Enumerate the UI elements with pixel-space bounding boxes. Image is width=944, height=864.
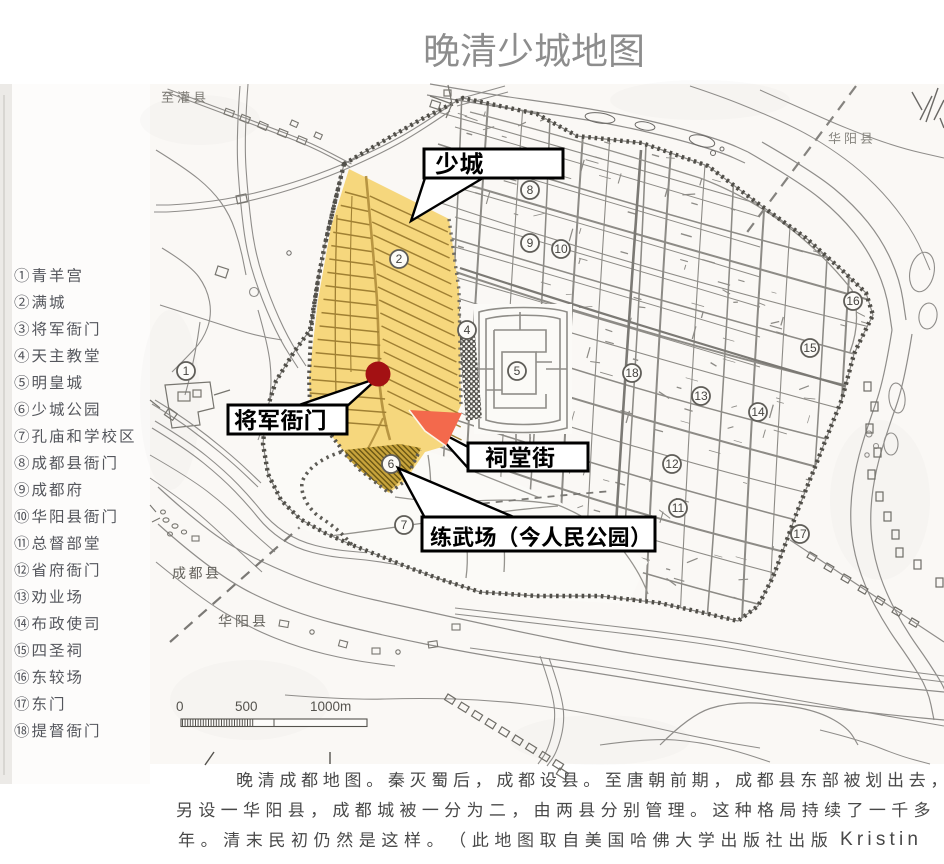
svg-text:0: 0: [176, 699, 184, 714]
svg-text:10: 10: [554, 242, 568, 256]
svg-text:18: 18: [625, 366, 639, 380]
svg-text:1: 1: [183, 364, 190, 378]
svg-text:11: 11: [672, 501, 685, 515]
svg-text:9: 9: [527, 236, 534, 250]
svg-text:14: 14: [751, 405, 765, 419]
svg-text:8: 8: [527, 183, 534, 197]
svg-text:12: 12: [665, 457, 679, 471]
svg-text:1000m: 1000m: [310, 699, 351, 714]
svg-text:17: 17: [793, 527, 807, 541]
svg-text:5: 5: [514, 364, 521, 378]
svg-text:500: 500: [235, 699, 258, 714]
svg-text:16: 16: [846, 294, 860, 308]
svg-text:7: 7: [401, 518, 408, 532]
svg-text:4: 4: [464, 323, 471, 337]
svg-text:6: 6: [388, 457, 395, 471]
svg-text:2: 2: [396, 252, 403, 266]
svg-text:13: 13: [694, 389, 708, 403]
svg-text:15: 15: [803, 341, 817, 355]
svg-text:Kristin: Kristin: [840, 829, 922, 850]
